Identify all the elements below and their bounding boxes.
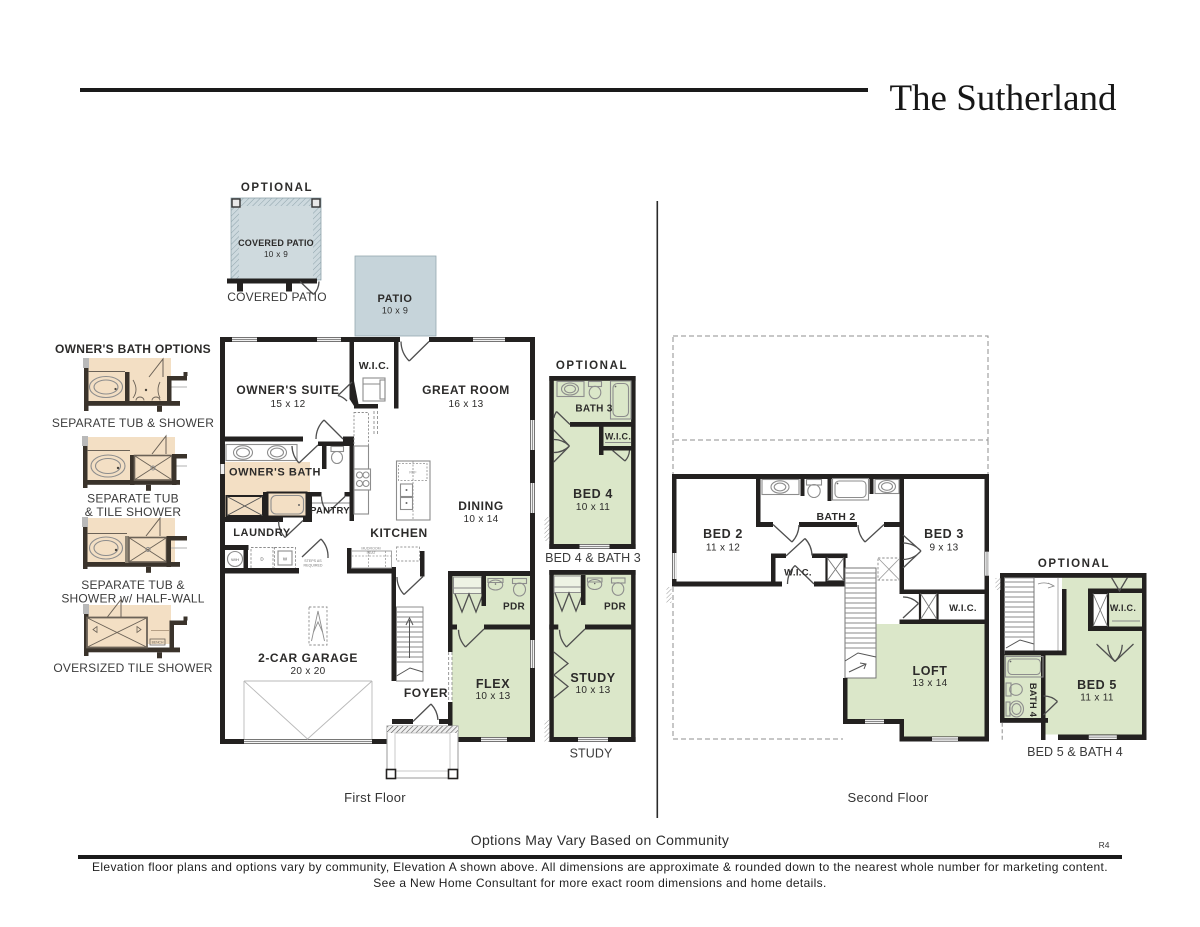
svg-text:BATH 4: BATH 4 (1028, 683, 1038, 718)
svg-text:W.I.C.: W.I.C. (605, 432, 631, 442)
svg-text:BENCH: BENCH (152, 641, 164, 645)
svg-text:SEPARATE TUB: SEPARATE TUB (87, 492, 179, 506)
svg-text:GREAT ROOM: GREAT ROOM (422, 383, 510, 397)
svg-text:FOYER: FOYER (404, 686, 448, 700)
svg-text:MUDROOM: MUDROOM (361, 547, 380, 551)
svg-text:W.I.C.: W.I.C. (1110, 603, 1136, 613)
svg-text:R4: R4 (1099, 840, 1110, 850)
svg-text:16 x 13: 16 x 13 (449, 399, 484, 410)
svg-text:STUDY: STUDY (570, 671, 615, 685)
svg-text:LAUNDRY: LAUNDRY (233, 527, 291, 539)
svg-text:BED 3: BED 3 (924, 527, 964, 541)
svg-text:Elevation floor plans and opti: Elevation floor plans and options vary b… (92, 860, 1108, 874)
svg-text:D: D (260, 557, 264, 562)
svg-text:STEPS AS: STEPS AS (304, 559, 322, 563)
svg-text:BED 5: BED 5 (1077, 678, 1117, 692)
svg-text:W/H: W/H (231, 557, 239, 562)
svg-text:PDR: PDR (503, 602, 525, 613)
svg-text:15 x 12: 15 x 12 (271, 399, 306, 410)
svg-text:LOFT: LOFT (912, 664, 947, 678)
svg-text:REQUIRED: REQUIRED (304, 564, 323, 568)
svg-text:REF: REF (409, 471, 417, 475)
svg-text:PDR: PDR (604, 602, 626, 613)
svg-text:10 x 13: 10 x 13 (576, 685, 611, 696)
svg-text:10 x 9: 10 x 9 (382, 306, 408, 316)
svg-text:11 x 12: 11 x 12 (706, 543, 740, 554)
svg-text:W.I.C.: W.I.C. (949, 603, 977, 614)
svg-text:10 x 11: 10 x 11 (576, 502, 610, 513)
svg-text:SHOWER w/ HALF-WALL: SHOWER w/ HALF-WALL (61, 592, 204, 606)
svg-text:& TILE SHOWER: & TILE SHOWER (85, 505, 182, 519)
svg-text:PATIO: PATIO (378, 293, 413, 305)
svg-text:OPTIONAL: OPTIONAL (241, 182, 313, 194)
svg-text:9 x 13: 9 x 13 (929, 543, 958, 554)
svg-text:First Floor: First Floor (344, 790, 406, 805)
svg-text:11 x 11: 11 x 11 (1080, 693, 1114, 704)
svg-text:BATH 2: BATH 2 (817, 511, 856, 523)
svg-text:10 x 9: 10 x 9 (264, 250, 288, 259)
svg-text:BED 2: BED 2 (703, 527, 743, 541)
svg-text:BED 5 & BATH 4: BED 5 & BATH 4 (1027, 745, 1123, 759)
svg-text:OVERSIZED TILE SHOWER: OVERSIZED TILE SHOWER (53, 661, 212, 675)
svg-text:BATH 3: BATH 3 (575, 404, 612, 415)
svg-text:Options May Vary Based on Comm: Options May Vary Based on Community (471, 832, 729, 848)
svg-text:BED 4 & BATH 3: BED 4 & BATH 3 (545, 551, 641, 565)
svg-text:See a New Home Consultant for: See a New Home Consultant for more exact… (373, 876, 826, 890)
svg-text:W: W (283, 557, 288, 562)
svg-text:STUDY: STUDY (570, 747, 613, 761)
svg-text:13 x 14: 13 x 14 (913, 678, 948, 689)
svg-text:Second Floor: Second Floor (848, 790, 929, 805)
svg-text:10 x 13: 10 x 13 (476, 691, 511, 702)
svg-text:W.I.C.: W.I.C. (784, 568, 812, 579)
svg-text:DINING: DINING (458, 499, 504, 513)
svg-text:COVERED PATIO: COVERED PATIO (227, 290, 327, 304)
svg-text:OWNER'S SUITE: OWNER'S SUITE (236, 383, 339, 397)
svg-text:The Sutherland: The Sutherland (889, 78, 1117, 119)
svg-text:OPTIONAL: OPTIONAL (1038, 558, 1110, 570)
svg-text:FLEX: FLEX (476, 677, 510, 691)
svg-text:BED 4: BED 4 (573, 487, 613, 501)
svg-text:OPTIONAL: OPTIONAL (556, 360, 628, 372)
svg-text:W.I.C.: W.I.C. (359, 360, 389, 372)
svg-text:SEAT: SEAT (366, 551, 376, 555)
svg-text:KITCHEN: KITCHEN (370, 526, 428, 540)
svg-text:2-CAR GARAGE: 2-CAR GARAGE (258, 651, 358, 665)
svg-text:PANTRY: PANTRY (310, 506, 350, 517)
svg-text:SEPARATE TUB & SHOWER: SEPARATE TUB & SHOWER (52, 416, 214, 430)
svg-text:OWNER'S BATH OPTIONS: OWNER'S BATH OPTIONS (55, 342, 211, 356)
svg-text:SEPARATE TUB &: SEPARATE TUB & (81, 578, 185, 592)
svg-text:COVERED PATIO: COVERED PATIO (238, 238, 314, 248)
svg-text:20 x 20: 20 x 20 (291, 666, 326, 677)
svg-text:10 x 14: 10 x 14 (464, 514, 499, 525)
svg-text:OWNER'S BATH: OWNER'S BATH (229, 467, 321, 479)
